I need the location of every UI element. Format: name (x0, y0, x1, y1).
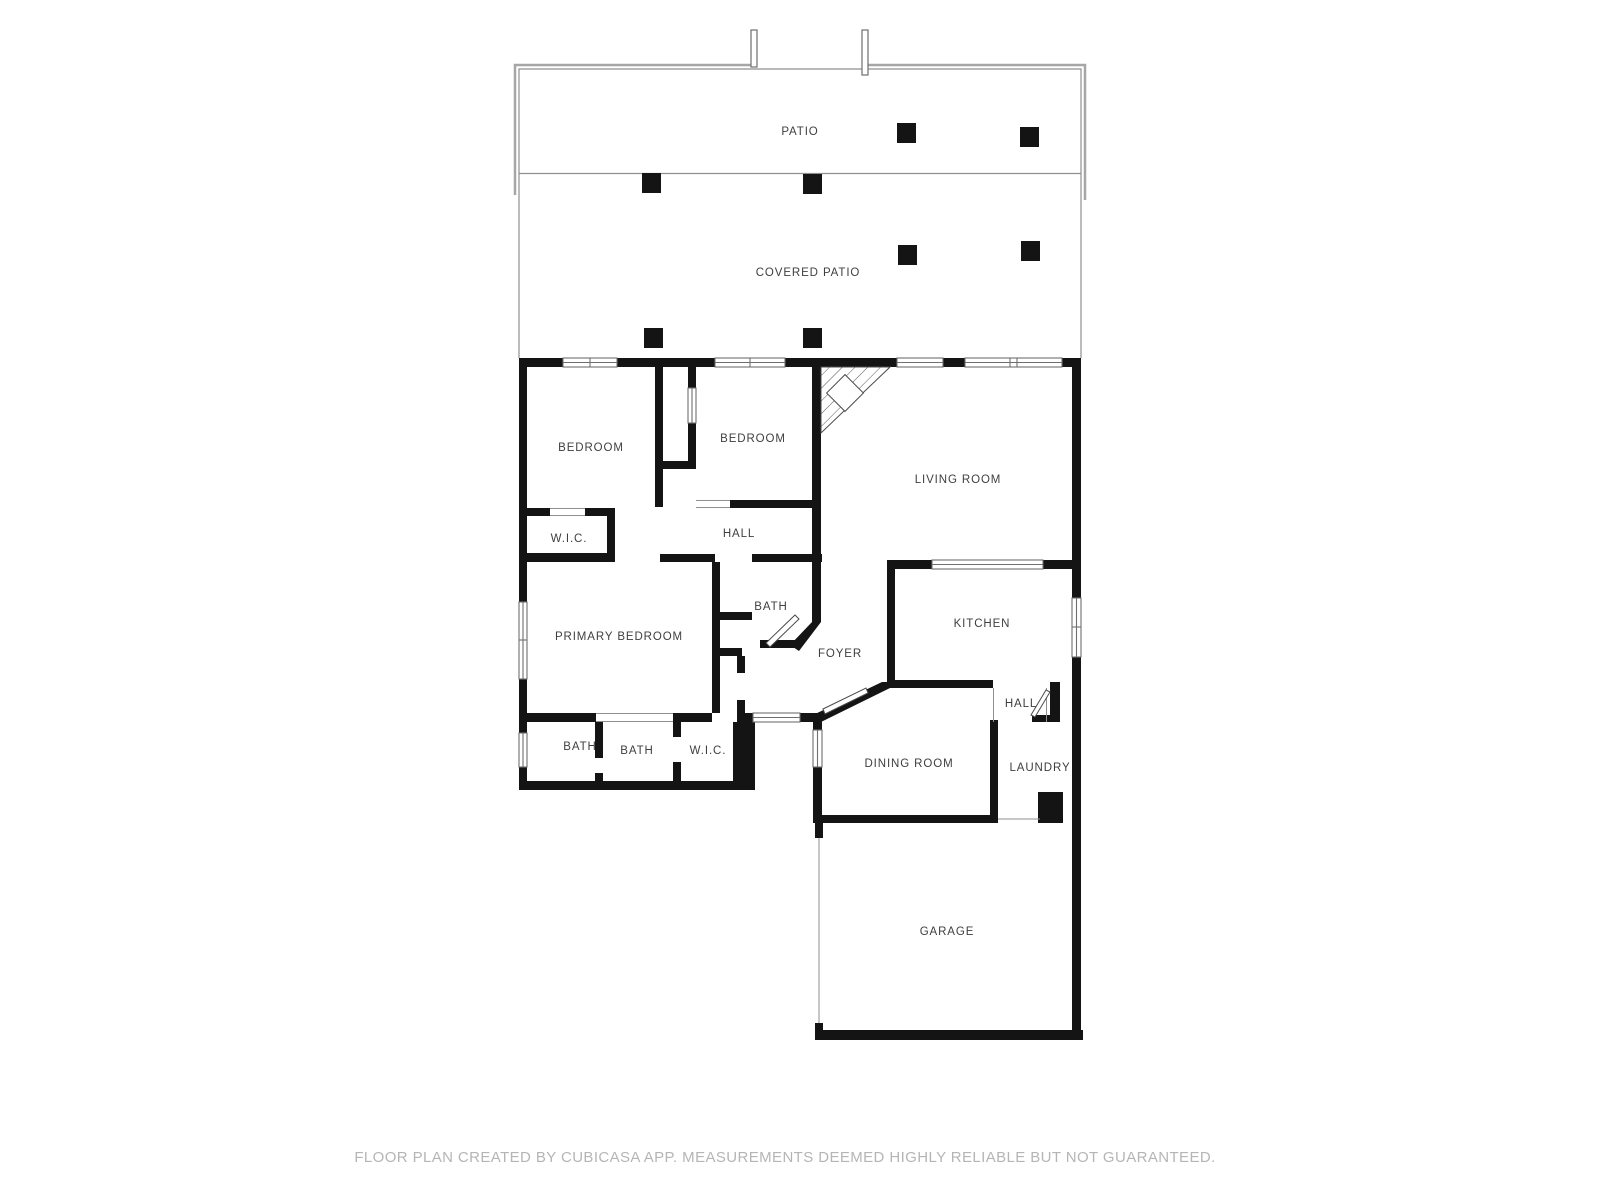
walls (519, 358, 1083, 1040)
room-label-primary-bedroom: PRIMARY BEDROOM (555, 631, 683, 643)
window-dining-left (813, 730, 822, 767)
windows (519, 358, 1081, 767)
room-label-dining-room: DINING ROOM (864, 758, 953, 770)
fireplace-icon (821, 367, 890, 433)
room-label-hall-bedrooms: HALL (723, 528, 755, 540)
patio-outline (515, 30, 1085, 358)
window-foyer-south (753, 713, 800, 722)
room-label-foyer: FOYER (818, 648, 862, 660)
window-living-small (897, 358, 943, 367)
room-label-kitchen: KITCHEN (954, 618, 1011, 630)
room-label-bath-primary: BATH (754, 601, 787, 613)
pillar (644, 328, 663, 348)
room-label-covered-patio: COVERED PATIO (756, 267, 861, 279)
window-bedroom2-top (715, 358, 785, 367)
room-label-wic-upper: W.I.C. (551, 533, 588, 545)
room-label-living-room: LIVING ROOM (915, 474, 1002, 486)
pillar (803, 174, 822, 194)
pillar (897, 123, 916, 143)
floor-plan-canvas: PATIOCOVERED PATIOBEDROOMBEDROOMLIVING R… (0, 0, 1600, 1200)
window-bath-left (519, 733, 527, 767)
room-label-bath-middle: BATH (620, 745, 653, 757)
window-bedroom1-top (563, 358, 617, 367)
room-label-wic-lower: W.I.C. (690, 745, 727, 757)
pillar (1021, 241, 1040, 261)
window-living-large (965, 358, 1062, 367)
room-label-laundry: LAUNDRY (1009, 762, 1070, 774)
openings (550, 501, 1047, 1024)
room-label-bedroom-1: BEDROOM (558, 442, 624, 454)
pillar (803, 328, 822, 348)
opening-kitchen-passthrough (932, 560, 1043, 569)
room-label-bath-left: BATH (563, 741, 596, 753)
pillar (642, 173, 661, 193)
window-primary-left (519, 602, 527, 679)
room-label-garage: GARAGE (920, 926, 975, 938)
room-label-patio: PATIO (781, 126, 818, 138)
room-label-hall-kitchen: HALL (1005, 698, 1037, 710)
footer-disclaimer-text: FLOOR PLAN CREATED BY CUBICASA APP. MEAS… (354, 1149, 1215, 1166)
window-bedroom-niche (688, 388, 696, 423)
patio-pillars (642, 123, 1040, 348)
floor-plan-page: PATIOCOVERED PATIOBEDROOMBEDROOMLIVING R… (0, 0, 1600, 1200)
window-kitchen-right (1072, 598, 1081, 657)
pillar (1020, 127, 1039, 147)
pillar (898, 245, 917, 265)
room-label-bedroom-2: BEDROOM (720, 433, 786, 445)
